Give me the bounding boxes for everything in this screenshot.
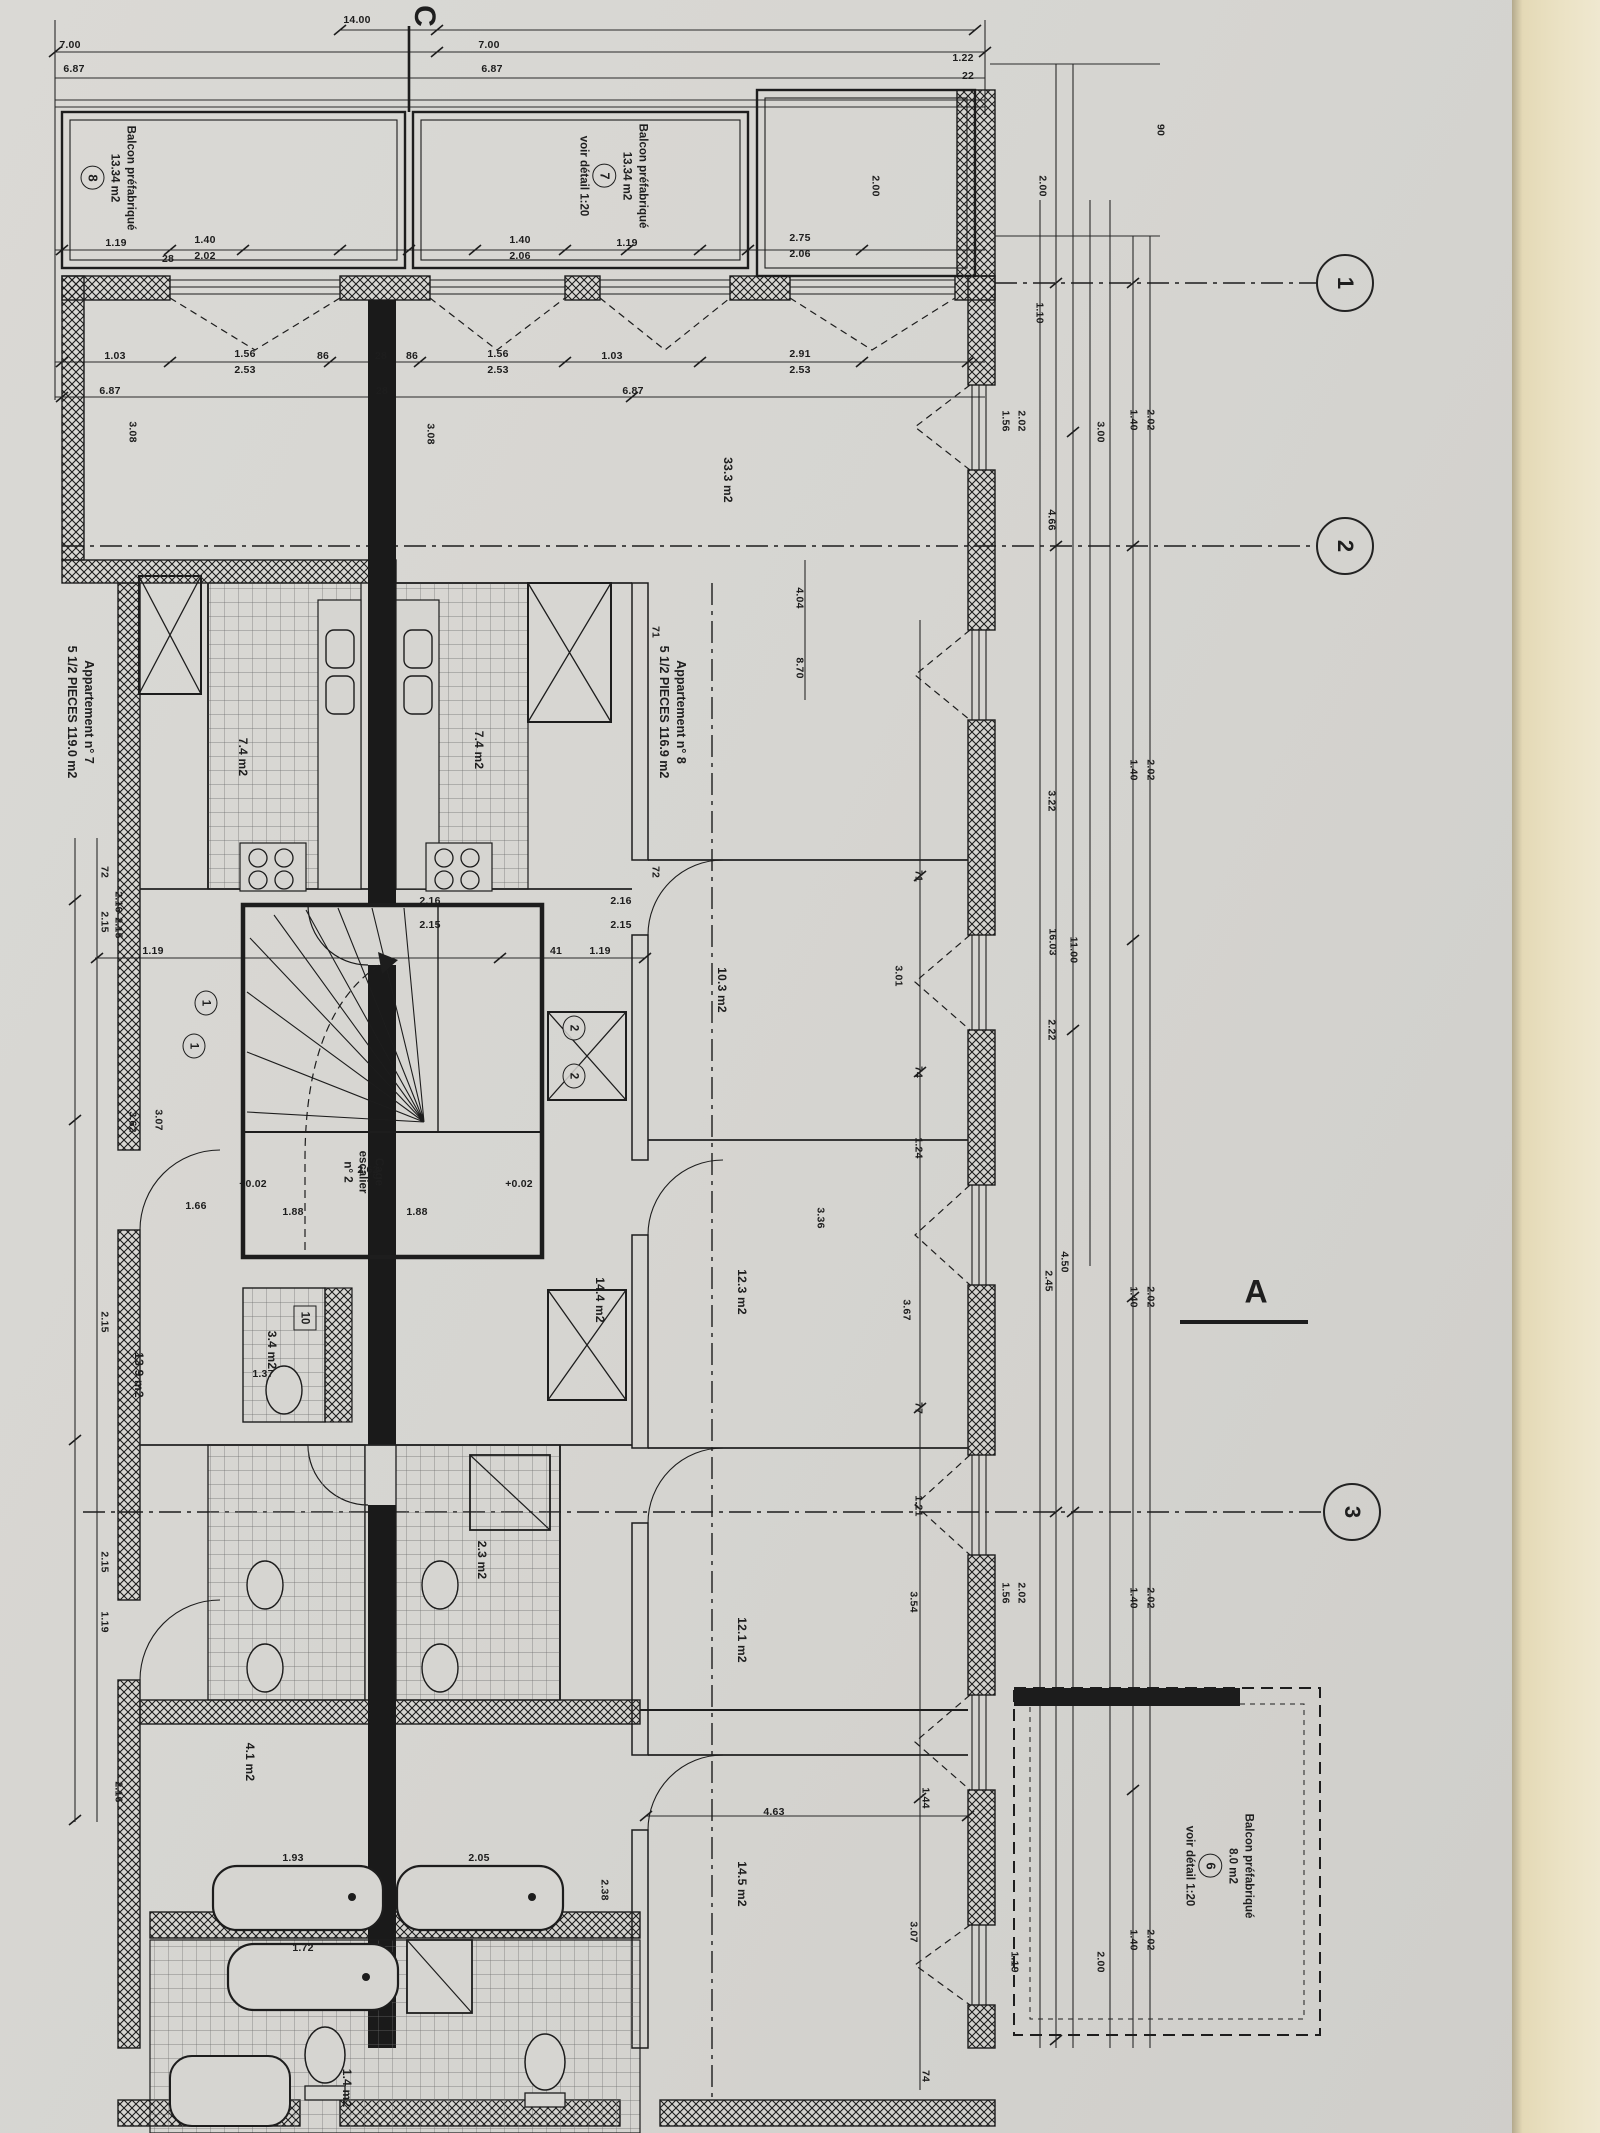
dim-label: 2.62	[357, 1165, 378, 1176]
dim-label: 2.02	[1145, 1929, 1156, 1950]
section-marker-a: A	[1244, 1274, 1267, 1311]
dim-label: 1.24	[913, 1137, 924, 1158]
dim-label: 1.40	[1128, 409, 1139, 430]
dim-label: 28	[376, 386, 388, 397]
dim-label: 2.16	[113, 1781, 124, 1802]
dim-label: 2.06	[509, 251, 530, 262]
dim-label: 1.19	[99, 1611, 110, 1632]
dim-label: 2.53	[789, 365, 810, 376]
dim-label: 1.40	[1128, 1286, 1139, 1307]
balcony-ref-circle: 7	[592, 164, 616, 188]
dim-label: 1.56	[1000, 410, 1011, 431]
room-area-label: 14.5 m2	[736, 1861, 748, 1906]
dim-label: 3.08	[425, 423, 436, 444]
dim-label: 71	[650, 626, 661, 638]
dim-label: 7.00	[59, 40, 80, 51]
dim-label: 7.00	[478, 40, 499, 51]
dim-label: 1.40	[1128, 759, 1139, 780]
balcony-note: voir détail 1:20	[575, 124, 591, 229]
dim-label: 2.02	[1145, 759, 1156, 780]
dim-label: 2.15	[113, 917, 124, 938]
room-area-label: 3.4 m2	[266, 1331, 278, 1370]
dim-label: 28	[375, 351, 387, 362]
dim-label: 1.19	[1009, 1951, 1020, 1972]
dim-label: 2.53	[234, 365, 255, 376]
balcony-ref-circle: 6	[1198, 1854, 1222, 1878]
dim-label: 2.15	[419, 920, 440, 931]
room-area-label: 13.9 m2	[133, 1352, 145, 1397]
dim-label: 2.38	[599, 1879, 610, 1900]
door-ref-tag: 1	[195, 991, 218, 1016]
room-area-label: 33.3 m2	[722, 457, 734, 502]
grid-bubble-3: 3	[1323, 1483, 1381, 1541]
dim-label: 86	[317, 351, 329, 362]
dim-label: 71	[913, 870, 924, 882]
dim-label: 2.02	[1145, 1286, 1156, 1307]
dim-label: 1.03	[104, 351, 125, 362]
dim-label: 2.15	[610, 920, 631, 931]
dim-label: 1.56	[1000, 1582, 1011, 1603]
dim-label: 1.40	[194, 235, 215, 246]
dim-label: 1.19	[589, 946, 610, 957]
dim-label: 3.36	[815, 1207, 826, 1228]
label-layer: C A 1 2 3 Balcon préfabriqué 13.34 m2 8 …	[0, 0, 1600, 2133]
dim-label: 2.22	[1046, 1019, 1057, 1040]
dim-label: 2.05	[468, 1853, 489, 1864]
dim-label: 2.15	[99, 1311, 110, 1332]
balcony-area: 8.0 m2	[1224, 1814, 1240, 1919]
dim-label: 2.06	[789, 249, 810, 260]
dim-label: 2.02	[1145, 409, 1156, 430]
dim-label: 1.19	[142, 946, 163, 957]
room-area-label: 12.1 m2	[736, 1617, 748, 1662]
balcony-area: 13.34 m2	[618, 124, 634, 229]
balcony-label-6: Balcon préfabriqué 8.0 m2 6 voir détail …	[1181, 1814, 1256, 1919]
apartment-number: Appartement n° 8	[672, 646, 689, 779]
room-area-label: 14.4 m2	[594, 1277, 606, 1322]
dim-label: 3.08	[127, 421, 138, 442]
dim-label: 41	[550, 946, 562, 957]
dim-label: 3.07	[908, 1921, 919, 1942]
balcony-ref-circle: 8	[80, 166, 104, 190]
dim-label: 1.93	[282, 1853, 303, 1864]
dim-label: 1.21	[913, 1495, 924, 1516]
dim-label: 1.56	[234, 349, 255, 360]
dim-label: 2.45	[1043, 1270, 1054, 1291]
dim-label: 1.40	[1128, 1587, 1139, 1608]
grid-bubble-1: 1	[1316, 254, 1374, 312]
dim-label: 2.00	[1095, 1951, 1106, 1972]
dim-label: 4.04	[794, 587, 805, 608]
dim-label: 14.00	[343, 15, 370, 26]
balcony-name: Balcon préfabriqué	[1240, 1814, 1256, 1919]
apartment-7-label: Appartement n° 7 5 1/2 PIECES 119.0 m2	[63, 646, 97, 779]
dim-label: 1.03	[601, 351, 622, 362]
dim-label: 6.87	[99, 386, 120, 397]
door-number-tag: 10	[294, 1306, 317, 1331]
room-area-label: 1.4 m2	[341, 2069, 353, 2108]
dim-label: +0.02	[505, 1179, 533, 1190]
room-area-label: 7.4 m2	[473, 731, 485, 770]
room-area-label: 7.4 m2	[237, 738, 249, 777]
dim-label: 28	[162, 254, 174, 265]
dim-label: 3.67	[901, 1299, 912, 1320]
dim-label: 8.70	[794, 657, 805, 678]
dim-label: 3.22	[1046, 790, 1057, 811]
room-area-label: 2.3 m2	[476, 1541, 488, 1580]
dim-label: 2.91	[789, 349, 810, 360]
dim-label: 1.40	[1128, 1929, 1139, 1950]
dim-label: 2.16	[113, 891, 124, 912]
dim-label: 4.63	[763, 1807, 784, 1818]
balcony-area: 13.34 m2	[106, 126, 122, 231]
dim-label: 11.00	[1068, 937, 1079, 964]
dim-label: 2.75	[789, 233, 810, 244]
dim-label: 1.40	[509, 235, 530, 246]
dim-label: 1.44	[920, 1787, 931, 1808]
dim-label: 86	[406, 351, 418, 362]
room-area-label: 10.3 m2	[716, 967, 728, 1012]
dim-label: 2.02	[1016, 1582, 1027, 1603]
apartment-size: 5 1/2 PIECES 119.0 m2	[63, 646, 80, 779]
dim-label: 72	[99, 866, 110, 878]
dim-label: 2.00	[870, 175, 881, 196]
floorplan-scan: C A 1 2 3 Balcon préfabriqué 13.34 m2 8 …	[0, 0, 1600, 2133]
door-ref-tag: 2	[563, 1064, 586, 1089]
apartment-size: 5 1/2 PIECES 116.9 m2	[655, 646, 672, 779]
grid-bubble-2: 2	[1316, 517, 1374, 575]
dim-label: 2.00	[1037, 175, 1048, 196]
dim-label: 2.15	[99, 911, 110, 932]
dim-label: 1.66	[185, 1201, 206, 1212]
dim-label: 2.16	[610, 896, 631, 907]
dim-label: 1.72	[292, 1943, 313, 1954]
dim-label: 1.88	[406, 1207, 427, 1218]
dim-label: 77	[913, 1402, 924, 1414]
dim-label: +0.02	[239, 1179, 267, 1190]
door-ref-tag: 1	[183, 1034, 206, 1059]
dim-label: 1.19	[105, 238, 126, 249]
dim-label: 1.88	[282, 1207, 303, 1218]
balcony-name: Balcon préfabriqué	[122, 126, 138, 231]
apartment-number: Appartement n° 7	[80, 646, 97, 779]
dim-label: 2.02	[1016, 410, 1027, 431]
dim-label: 2.15	[99, 1551, 110, 1572]
dim-label: 16.03	[1047, 928, 1058, 955]
dim-label: 4.50	[1059, 1251, 1070, 1272]
dim-label: 3.01	[893, 965, 904, 986]
balcony-name: Balcon préfabriqué	[634, 124, 650, 229]
dim-label: 1.56	[487, 349, 508, 360]
dim-label: 2.02	[194, 251, 215, 262]
room-area-label: 4.1 m2	[244, 1743, 256, 1782]
dim-label: 1.10	[1034, 302, 1045, 323]
grid-axis-c: C	[407, 5, 441, 27]
dim-label: 72	[650, 866, 661, 878]
dim-label: 74	[920, 2070, 931, 2082]
dim-label: 1.22	[952, 53, 973, 64]
balcony-label-7: Balcon préfabriqué 13.34 m2 7 voir détai…	[575, 124, 650, 229]
dim-label: 2.16	[419, 896, 440, 907]
apartment-8-label: Appartement n° 8 5 1/2 PIECES 116.9 m2	[655, 646, 689, 779]
dim-label: 22	[962, 71, 974, 82]
balcony-note: voir détail 1:20	[1181, 1814, 1197, 1919]
dim-label: 2.53	[487, 365, 508, 376]
dim-label: 1.37	[252, 1369, 273, 1380]
dim-label: 3.07	[153, 1109, 164, 1130]
dim-label: 2.02	[1145, 1587, 1156, 1608]
balcony-label-8: Balcon préfabriqué 13.34 m2 8	[78, 126, 137, 231]
door-ref-tag: 2	[563, 1016, 586, 1041]
dim-label: 3.54	[908, 1591, 919, 1612]
dim-label: 6.87	[481, 64, 502, 75]
dim-label: 90	[1155, 124, 1166, 136]
dim-label: 3.62	[127, 1111, 138, 1132]
dim-label: 74	[913, 1066, 924, 1078]
room-area-label: 12.3 m2	[736, 1269, 748, 1314]
dim-label: 4.66	[1046, 509, 1057, 530]
dim-label: 6.87	[622, 386, 643, 397]
dim-label: 6.87	[63, 64, 84, 75]
dim-label: 1.19	[616, 238, 637, 249]
dim-label: 3.00	[1095, 421, 1106, 442]
